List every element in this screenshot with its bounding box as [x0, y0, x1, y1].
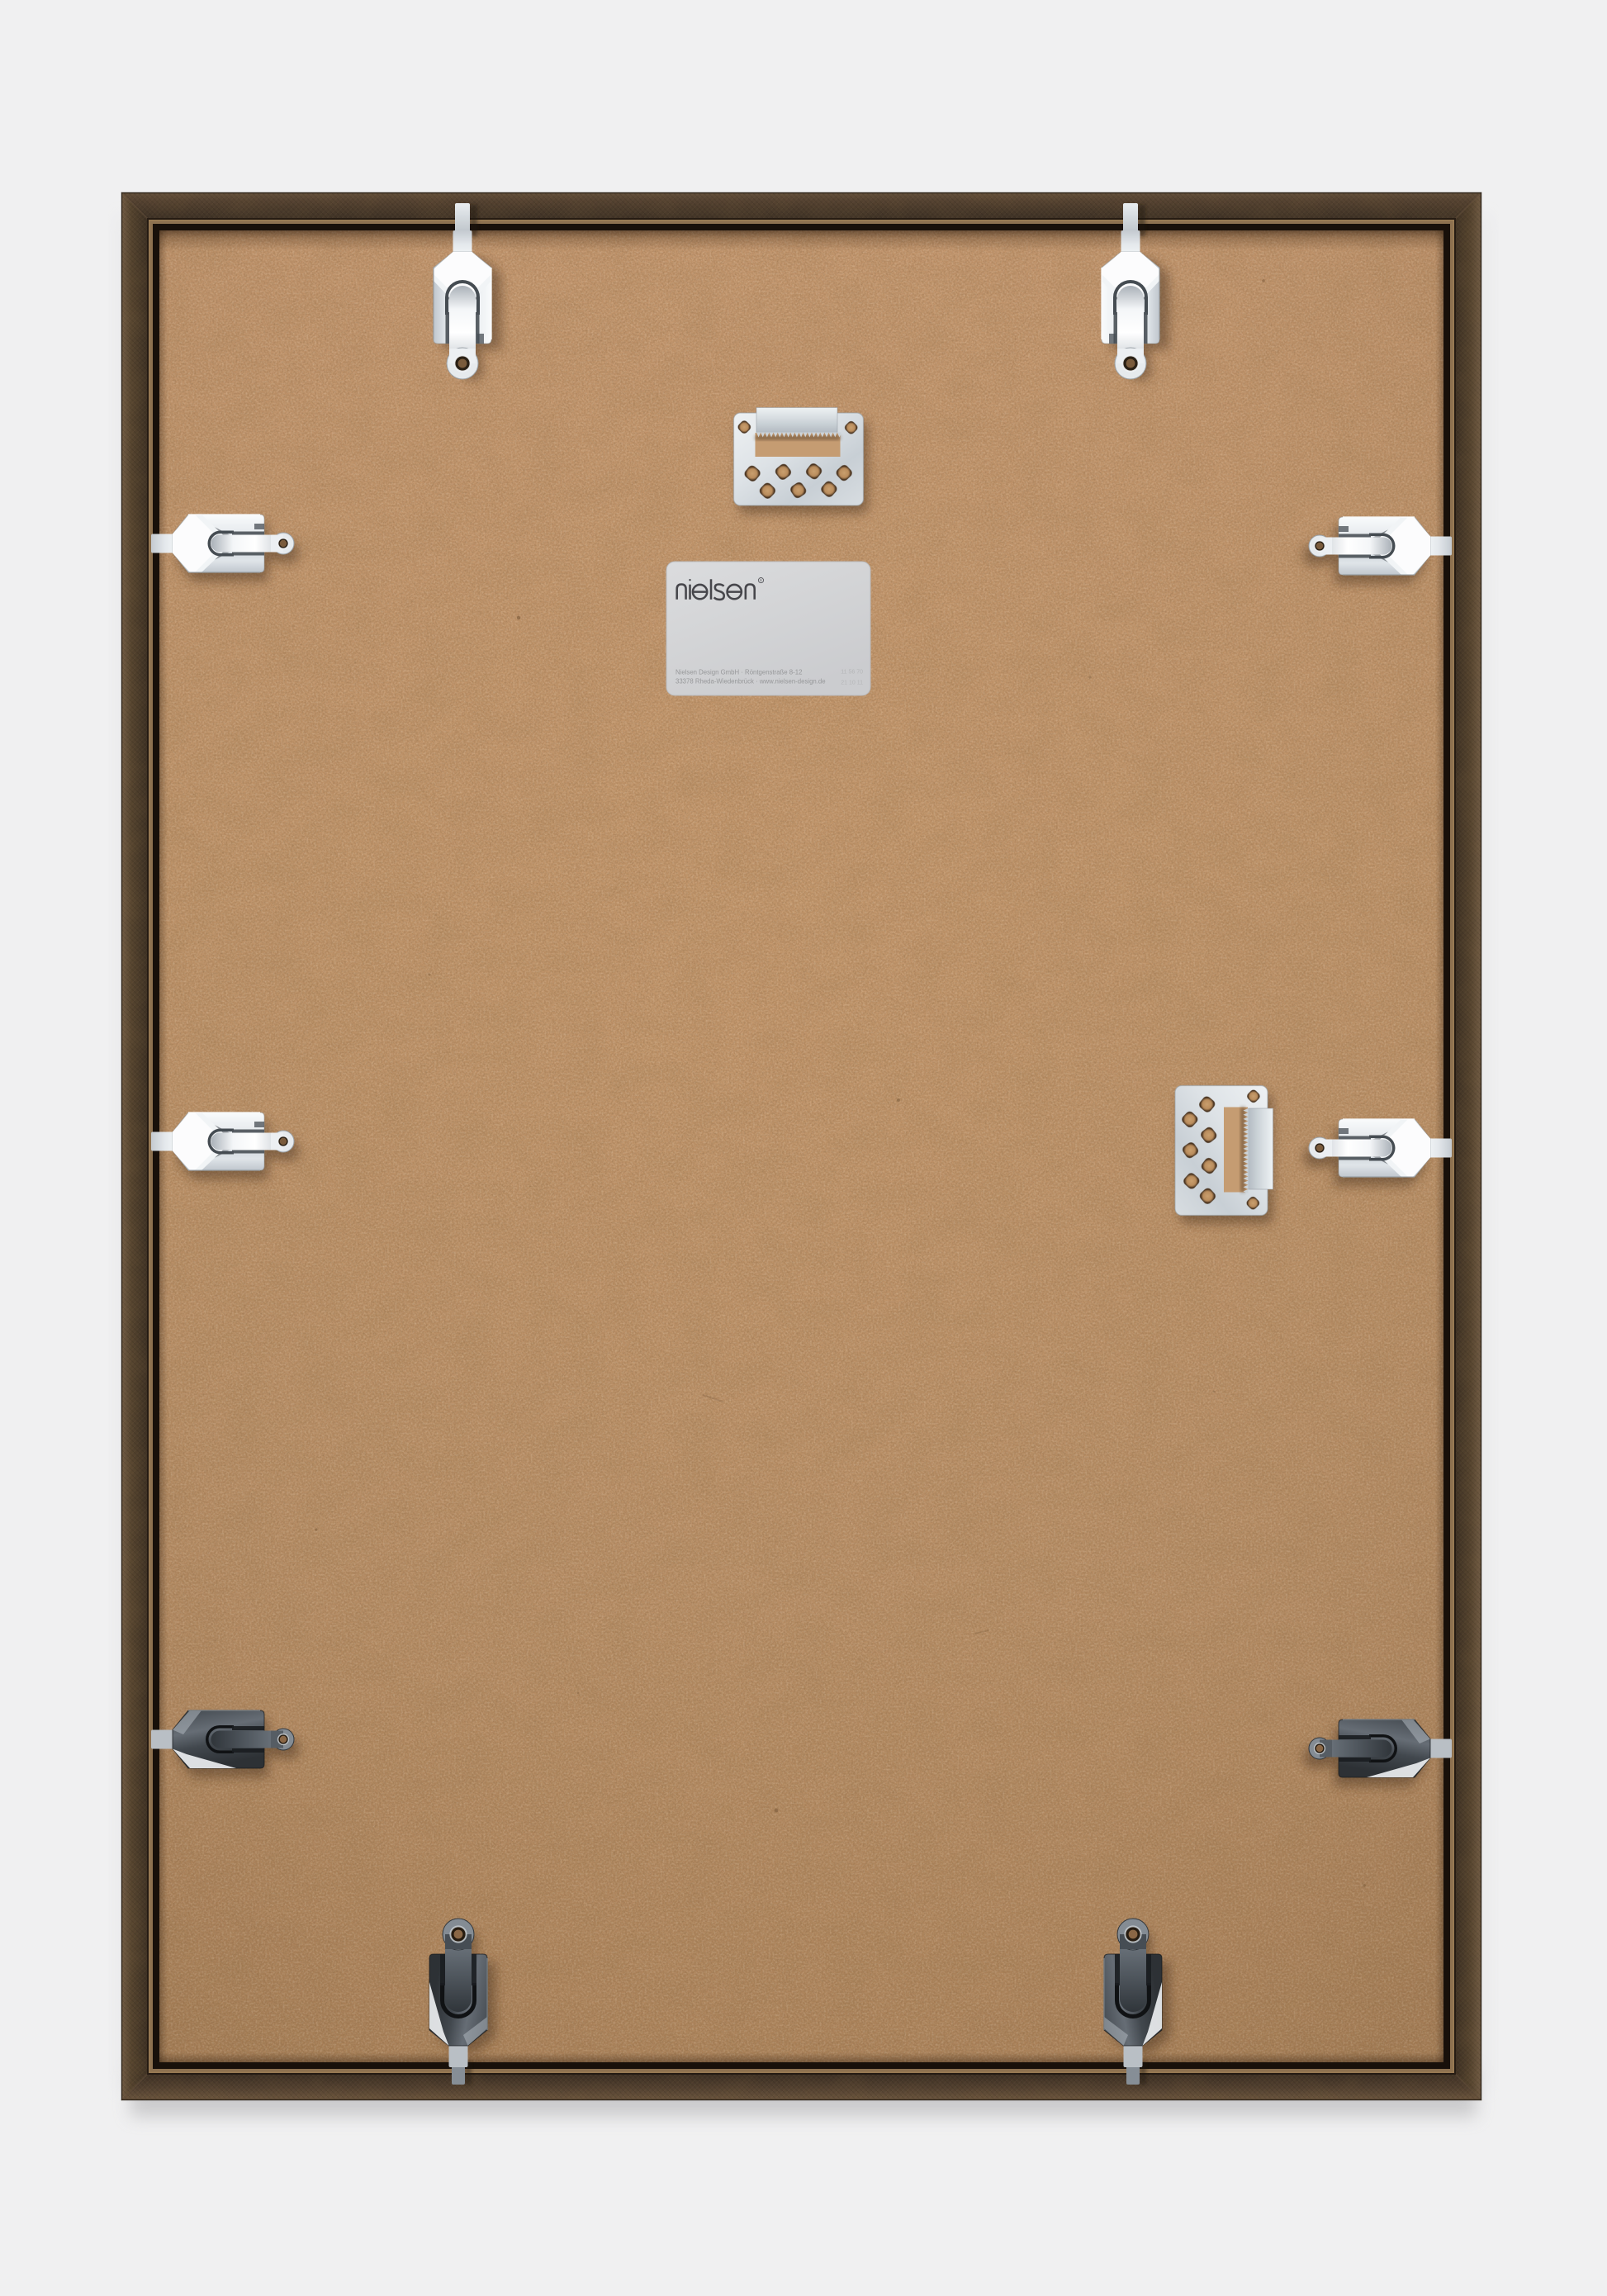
- svg-text:11 56 70: 11 56 70: [841, 670, 863, 676]
- svg-text:33378 Rheda-Wiedenbrück · www.: 33378 Rheda-Wiedenbrück · www.nielsen-de…: [676, 678, 826, 685]
- svg-text:Nielsen Design GmbH · Röntgens: Nielsen Design GmbH · Röntgenstraße 8-12: [676, 669, 802, 676]
- svg-text:R: R: [760, 579, 762, 583]
- svg-text:21 10 11: 21 10 11: [841, 681, 863, 686]
